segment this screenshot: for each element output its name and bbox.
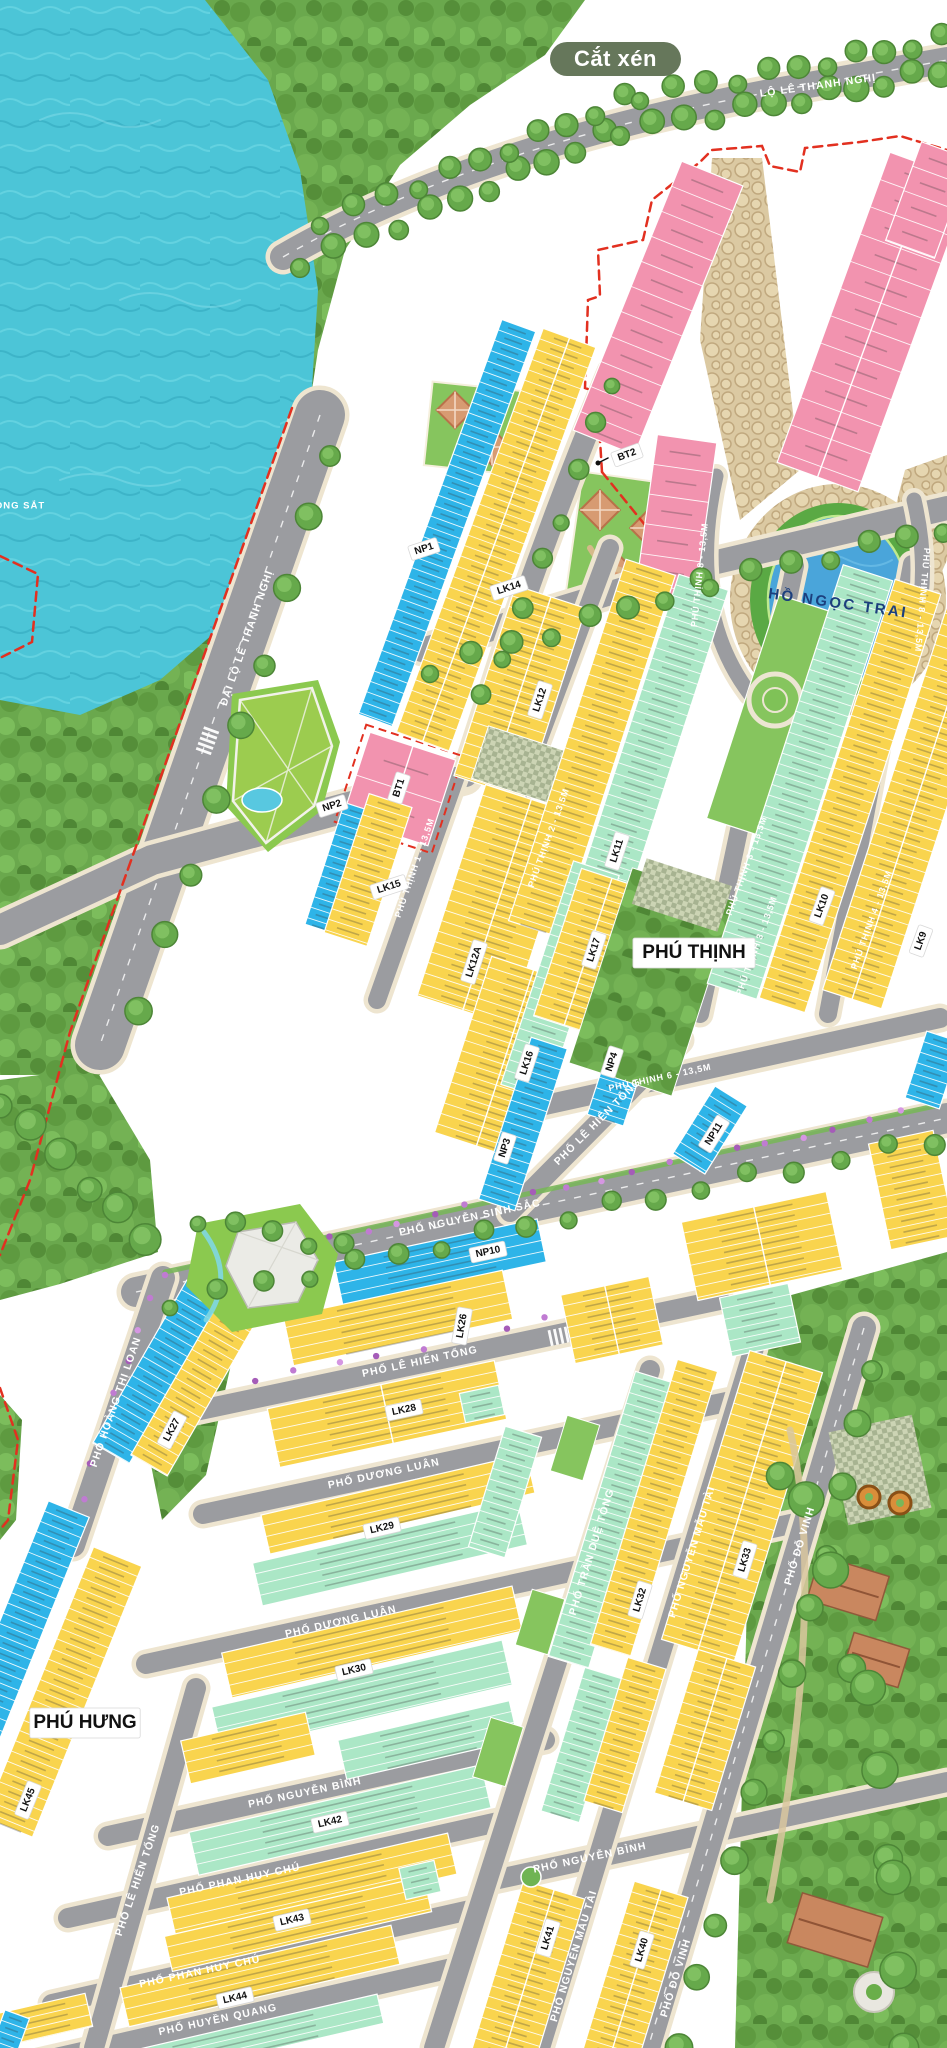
map-canvas: LỘ LÊ THANH NGHỊĐẠI LỘ LÊ THANH NGHỊỒNG … bbox=[0, 0, 947, 2048]
temple-ring-hole bbox=[896, 1499, 904, 1507]
bt2-leader-dot bbox=[596, 461, 601, 466]
cut-xen-badge[interactable]: Cắt xén bbox=[550, 42, 681, 76]
park-circle-core bbox=[763, 688, 787, 712]
svg-text:ỒNG SẮT: ỒNG SẮT bbox=[0, 500, 45, 512]
area-label-phu-hung: PHÚ HƯNG bbox=[30, 1708, 140, 1738]
master-plan-map: LỘ LÊ THANH NGHỊĐẠI LỘ LÊ THANH NGHỊỒNG … bbox=[0, 0, 947, 2048]
strip-right-edge-blue bbox=[905, 1031, 947, 1109]
area-label-phu-thinh: PHÚ THỊNH bbox=[633, 938, 755, 968]
building-pool bbox=[242, 788, 282, 812]
temple-plaza-core bbox=[866, 1984, 882, 2000]
bt2-leader-line bbox=[600, 458, 608, 462]
temple-ring-hole bbox=[865, 1493, 873, 1501]
strip-31 bbox=[681, 1191, 842, 1300]
svg-text:PHÚ THỊNH: PHÚ THỊNH bbox=[642, 941, 745, 963]
block-label-lk9: LK9 bbox=[909, 924, 933, 957]
map-paint-root: LỘ LÊ THANH NGHỊĐẠI LỘ LÊ THANH NGHỊỒNG … bbox=[0, 0, 947, 2048]
railway-label: ỒNG SẮT bbox=[0, 500, 45, 512]
strip-32-upper bbox=[561, 1276, 664, 1363]
svg-text:PHÚ HƯNG: PHÚ HƯNG bbox=[33, 1711, 136, 1733]
